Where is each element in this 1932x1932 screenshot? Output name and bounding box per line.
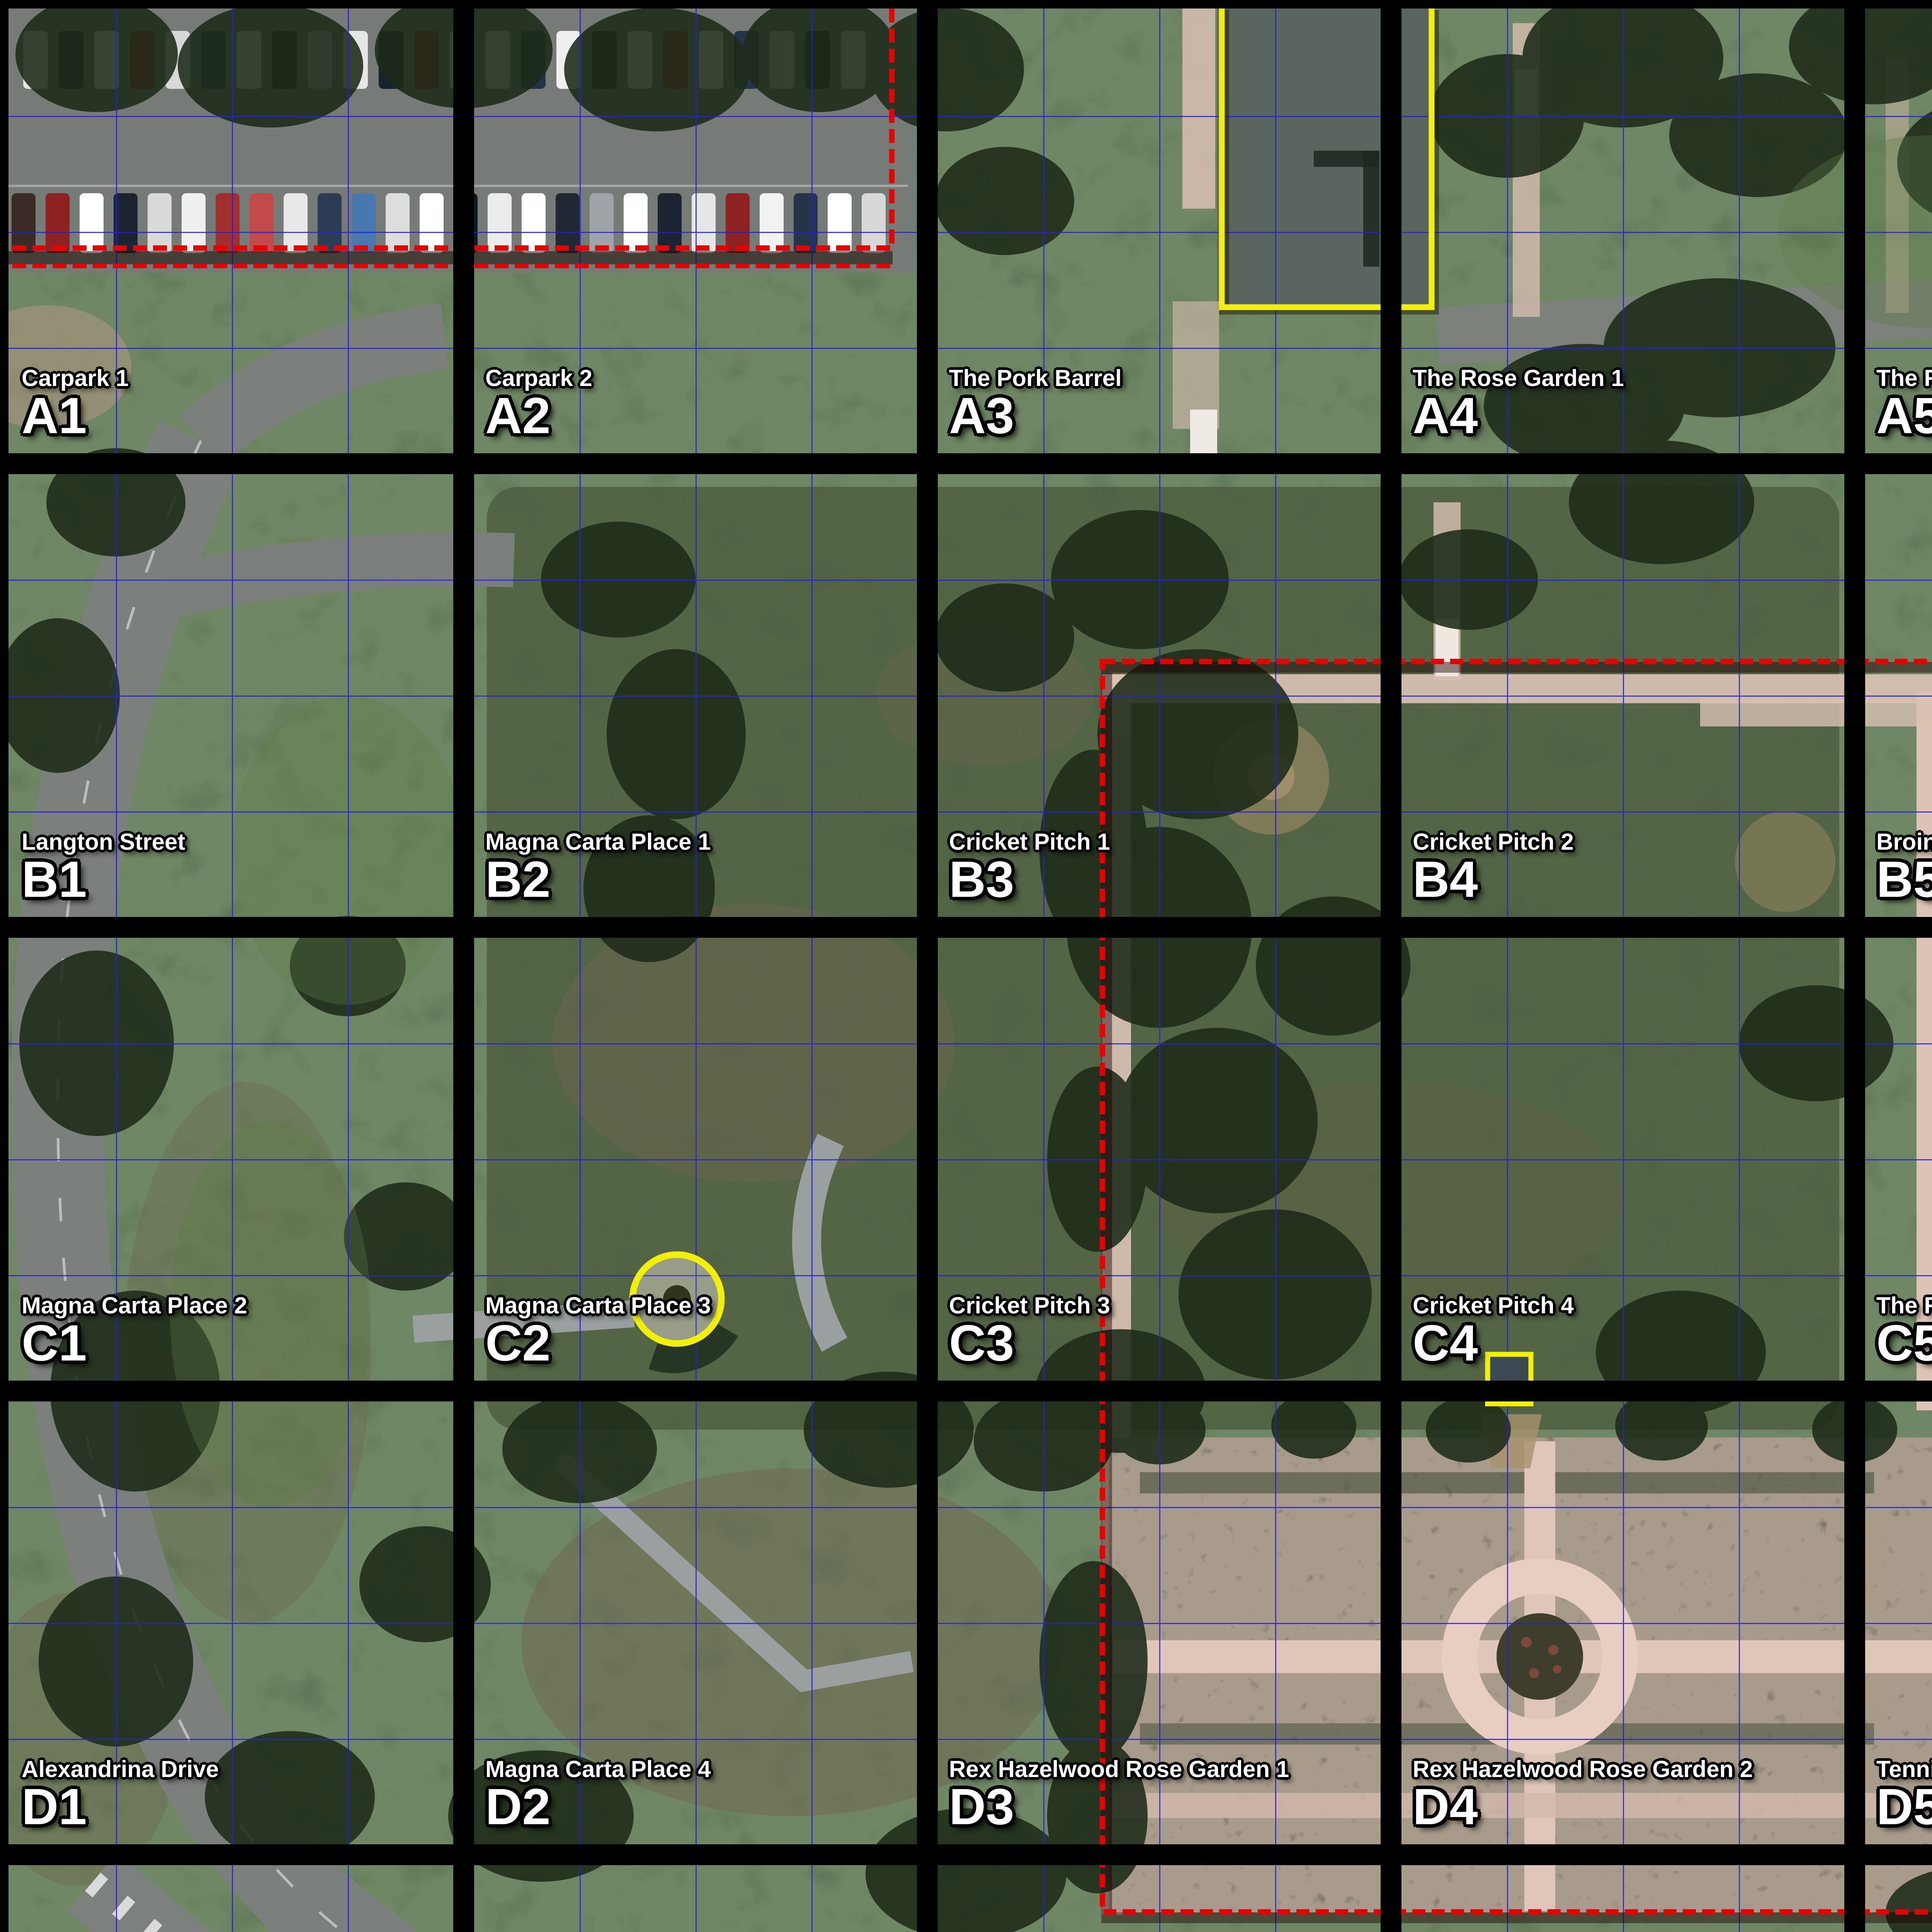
tile-id: B2 bbox=[485, 855, 711, 903]
map-tile-C3[interactable]: Cricket Pitch 3C3 bbox=[927, 927, 1391, 1391]
tile-label: Langton StreetB1 bbox=[22, 830, 185, 904]
tile-name: The Rose Garden 2 bbox=[1876, 366, 1932, 390]
map-tile-D3[interactable]: Rex Hazelwood Rose Garden 1D3 bbox=[927, 1391, 1391, 1855]
tile-name: Carpark 2 bbox=[485, 366, 592, 390]
tile-name: Carpark 1 bbox=[22, 366, 129, 390]
map-tile-B5[interactable]: Broinowski Rose Garden 1B5 bbox=[1855, 464, 1932, 927]
tile-name: The Rose Garden 1 bbox=[1413, 366, 1624, 390]
tile-name: Cricket Pitch 2 bbox=[1413, 830, 1574, 854]
map-tile-D2[interactable]: Magna Carta Place 4D2 bbox=[464, 1391, 927, 1855]
tile-id: B1 bbox=[22, 855, 185, 903]
tile-label: Carpark 2A2 bbox=[485, 366, 592, 440]
tile-id: C3 bbox=[949, 1319, 1110, 1367]
tile-label: Cricket Pitch 2B4 bbox=[1413, 830, 1574, 904]
tile-id: B3 bbox=[949, 855, 1110, 903]
map-tile-E5[interactable]: Queen Victoria Terrace 4E5 bbox=[1855, 1855, 1932, 1932]
map-tile-A1[interactable]: Carpark 1A1 bbox=[0, 0, 464, 464]
tile-name: Tennis Courts bbox=[1876, 1757, 1932, 1781]
tile-label: Magna Carta Place 4D2 bbox=[485, 1757, 711, 1831]
map-tile-C1[interactable]: Magna Carta Place 2C1 bbox=[0, 927, 464, 1391]
tile-id: D1 bbox=[22, 1782, 219, 1831]
tile-label: Magna Carta Place 1B2 bbox=[485, 830, 711, 904]
tile-label: Cricket Pitch 3C3 bbox=[949, 1294, 1110, 1367]
tile-name: Broinowski Rose Garden 1 bbox=[1876, 830, 1932, 854]
map-tile-B2[interactable]: Magna Carta Place 1B2 bbox=[464, 464, 927, 927]
tile-label: The Rose Garden 2C5 bbox=[1876, 1294, 1932, 1367]
tile-label: Carpark 1A1 bbox=[22, 366, 129, 440]
tile-id: D3 bbox=[949, 1782, 1289, 1831]
map-tile-E3[interactable]: Queen Victoria Terrace 2E3 bbox=[927, 1855, 1391, 1932]
tile-id: C2 bbox=[485, 1319, 711, 1367]
map-tile-A4[interactable]: The Rose Garden 1A4 bbox=[1391, 0, 1855, 464]
tile-name: Cricket Pitch 4 bbox=[1413, 1294, 1574, 1317]
map-tile-E1[interactable]: Carpark 3E1 bbox=[0, 1855, 464, 1932]
tile-label: The Pork BarrelA3 bbox=[949, 366, 1122, 440]
map-tile-A5[interactable]: The Rose Garden 2A5 bbox=[1855, 0, 1932, 464]
tile-label: Broinowski Rose Garden 1B5 bbox=[1876, 830, 1932, 904]
tile-id: C1 bbox=[22, 1319, 247, 1367]
tile-name: Alexandrina Drive bbox=[22, 1757, 219, 1781]
map-tile-C4[interactable]: Cricket Pitch 4C4 bbox=[1391, 927, 1855, 1391]
tile-id: B4 bbox=[1413, 855, 1574, 903]
tile-name: Langton Street bbox=[22, 830, 185, 854]
tile-id: A5 bbox=[1876, 391, 1932, 440]
tile-name: The Rose Garden 2 bbox=[1876, 1294, 1932, 1317]
tile-label: The Rose Garden 1A4 bbox=[1413, 366, 1624, 440]
tile-name: Rex Hazelwood Rose Garden 1 bbox=[949, 1757, 1289, 1781]
tile-name: Magna Carta Place 3 bbox=[485, 1294, 711, 1317]
map-tile-D5[interactable]: Tennis CourtsD5 bbox=[1855, 1391, 1932, 1855]
tile-name: The Pork Barrel bbox=[949, 366, 1122, 390]
tile-name: Magna Carta Place 2 bbox=[22, 1294, 247, 1317]
tile-label: Rex Hazelwood Rose Garden 2D4 bbox=[1413, 1757, 1753, 1831]
tile-label: The Rose Garden 2A5 bbox=[1876, 366, 1932, 440]
map-tile-A2[interactable]: Carpark 2A2 bbox=[464, 0, 927, 464]
tile-id: B5 bbox=[1876, 855, 1932, 903]
satellite-map-grid: Carpark 1A1 Carpark 2A2 The Pork BarrelA… bbox=[0, 0, 1932, 1932]
map-tile-C5[interactable]: The Rose Garden 2C5 bbox=[1855, 927, 1932, 1391]
tile-id: A3 bbox=[949, 391, 1122, 440]
tile-name: Magna Carta Place 1 bbox=[485, 830, 711, 854]
tile-name: Magna Carta Place 4 bbox=[485, 1757, 711, 1781]
tile-id: A2 bbox=[485, 391, 592, 440]
tile-label: Cricket Pitch 1B3 bbox=[949, 830, 1110, 904]
tile-id: D5 bbox=[1876, 1782, 1932, 1831]
tile-label: Rex Hazelwood Rose Garden 1D3 bbox=[949, 1757, 1289, 1831]
map-tile-E2[interactable]: Queen Victoria Terrace 1E2 bbox=[464, 1855, 927, 1932]
map-tile-C2[interactable]: Magna Carta Place 3C2 bbox=[464, 927, 927, 1391]
tile-label: Magna Carta Place 3C2 bbox=[485, 1294, 711, 1367]
tile-name: Cricket Pitch 3 bbox=[949, 1294, 1110, 1317]
tile-label: Tennis CourtsD5 bbox=[1876, 1757, 1932, 1831]
tile-label: Magna Carta Place 2C1 bbox=[22, 1294, 247, 1367]
map-tile-B4[interactable]: Cricket Pitch 2B4 bbox=[1391, 464, 1855, 927]
tile-label: Cricket Pitch 4C4 bbox=[1413, 1294, 1574, 1367]
tile-id: C4 bbox=[1413, 1319, 1574, 1367]
map-tile-B3[interactable]: Cricket Pitch 1B3 bbox=[927, 464, 1391, 927]
map-tile-E4[interactable]: Queen Victoria Terrace 3E4 bbox=[1391, 1855, 1855, 1932]
tile-id: D4 bbox=[1413, 1782, 1753, 1831]
tile-id: D2 bbox=[485, 1782, 711, 1831]
tile-id: A4 bbox=[1413, 391, 1624, 440]
tile-id: C5 bbox=[1876, 1319, 1932, 1367]
map-tile-B1[interactable]: Langton StreetB1 bbox=[0, 464, 464, 927]
map-tile-A3[interactable]: The Pork BarrelA3 bbox=[927, 0, 1391, 464]
map-tile-D1[interactable]: Alexandrina DriveD1 bbox=[0, 1391, 464, 1855]
map-tile-D4[interactable]: Rex Hazelwood Rose Garden 2D4 bbox=[1391, 1391, 1855, 1855]
tile-id: A1 bbox=[22, 391, 129, 440]
tile-label: Alexandrina DriveD1 bbox=[22, 1757, 219, 1831]
tile-name: Rex Hazelwood Rose Garden 2 bbox=[1413, 1757, 1753, 1781]
tile-name: Cricket Pitch 1 bbox=[949, 830, 1110, 854]
